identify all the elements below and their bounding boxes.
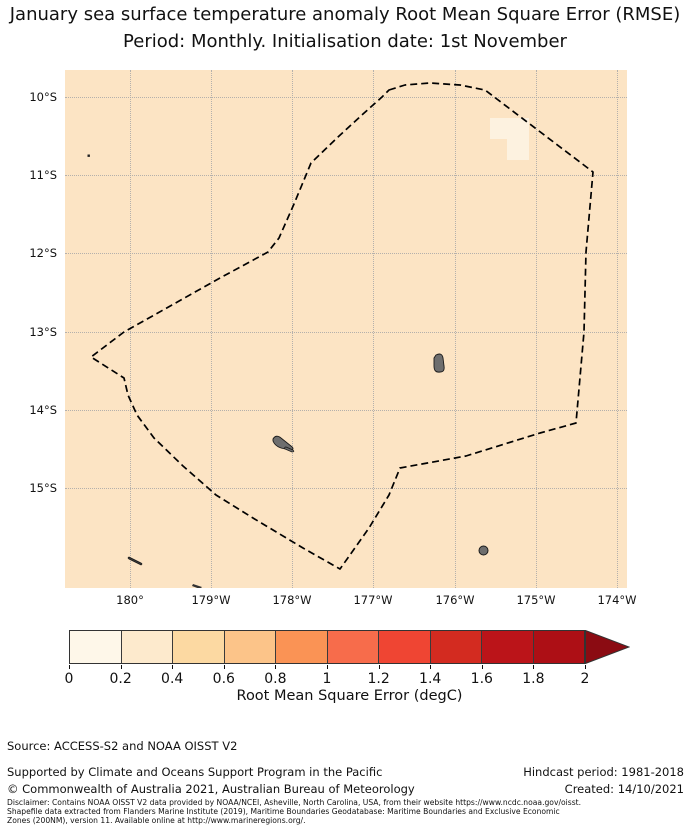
colorbar-extend-arrow	[585, 630, 630, 664]
cb-label-0.6: 0.6	[213, 671, 235, 687]
colorbar-segment-1.2-1.4	[379, 631, 431, 663]
footer-copyright: © Commonwealth of Australia 2021, Austra…	[7, 782, 415, 796]
x-tick-174w: 174°W	[597, 593, 636, 607]
footer-source: Source: ACCESS-S2 and NOAA OISST V2	[7, 739, 237, 753]
map-overlay-svg	[65, 70, 627, 588]
colorbar-segment-1.6-1.8	[482, 631, 534, 663]
cb-label-0: 0	[65, 671, 74, 687]
cb-tick-0.8	[275, 665, 276, 669]
colorbar-segment-1.0-1.2	[328, 631, 380, 663]
cb-label-1: 1	[323, 671, 332, 687]
cb-label-0.4: 0.4	[161, 671, 183, 687]
island-futuna	[273, 436, 293, 450]
y-tick-14s: 14°S	[7, 403, 57, 417]
disclaimer-line-3: Zones (200NM), version 11. Available onl…	[7, 817, 688, 826]
x-tick-179w: 179°W	[191, 593, 230, 607]
colorbar-segment-0.4-0.6	[173, 631, 225, 663]
x-tick-180: 180°	[116, 593, 144, 607]
cb-label-1.6: 1.6	[471, 671, 493, 687]
cb-tick-0.6	[224, 665, 225, 669]
island-wallis	[434, 354, 444, 372]
cb-tick-0.4	[172, 665, 173, 669]
footer-created: Created: 14/10/2021	[565, 782, 684, 796]
x-tick-177w: 177°W	[353, 593, 392, 607]
cb-tick-1	[327, 665, 328, 669]
colorbar-segment-0.6-0.8	[225, 631, 277, 663]
cb-label-0.2: 0.2	[109, 671, 131, 687]
cb-tick-2	[585, 665, 586, 669]
colorbar-segment-0.8-1.0	[276, 631, 328, 663]
colorbar-segment-1.8-2.0	[534, 631, 585, 663]
cb-label-1.8: 1.8	[522, 671, 544, 687]
colorbar-segment-1.4-1.6	[431, 631, 483, 663]
cb-tick-0	[69, 665, 70, 669]
colorbar-title: Root Mean Square Error (degC)	[69, 688, 630, 704]
island-sliver-southwest	[128, 557, 142, 565]
disclaimer-block: Disclaimer: Contains NOAA OISST V2 data …	[7, 799, 688, 825]
islet-speck-bottom-edge	[192, 584, 202, 588]
cb-label-2: 2	[581, 671, 590, 687]
footer-supported: Supported by Climate and Oceans Support …	[7, 765, 382, 779]
cb-label-1.2: 1.2	[367, 671, 389, 687]
eez-boundary-outline	[91, 83, 593, 569]
cb-label-0.8: 0.8	[264, 671, 286, 687]
x-tick-175w: 175°W	[516, 593, 555, 607]
y-tick-13s: 13°S	[7, 325, 57, 339]
map-panel	[65, 70, 627, 588]
cb-tick-1.4	[430, 665, 431, 669]
cb-tick-1.2	[379, 665, 380, 669]
colorbar-segment-0.0-0.2	[70, 631, 122, 663]
colorbar-segment-0.2-0.4	[122, 631, 174, 663]
cb-tick-0.2	[121, 665, 122, 669]
x-tick-176w: 176°W	[435, 593, 474, 607]
y-tick-15s: 15°S	[7, 481, 57, 495]
y-tick-10s: 10°S	[7, 90, 57, 104]
y-tick-11s: 11°S	[7, 168, 57, 182]
cb-tick-1.6	[482, 665, 483, 669]
cb-tick-1.8	[533, 665, 534, 669]
chart-title-container: January sea surface temperature anomaly …	[0, 4, 690, 28]
footer-hindcast: Hindcast period: 1981-2018	[523, 765, 684, 779]
colorbar	[69, 630, 585, 664]
y-tick-12s: 12°S	[7, 246, 57, 260]
islet-dot-northwest	[88, 155, 90, 157]
chart-subtitle: Period: Monthly. Initialisation date: 1s…	[0, 31, 690, 52]
island-round-southeast	[479, 546, 488, 555]
cb-label-1.4: 1.4	[419, 671, 441, 687]
x-tick-178w: 178°W	[272, 593, 311, 607]
chart-title: January sea surface temperature anomaly …	[10, 4, 681, 25]
